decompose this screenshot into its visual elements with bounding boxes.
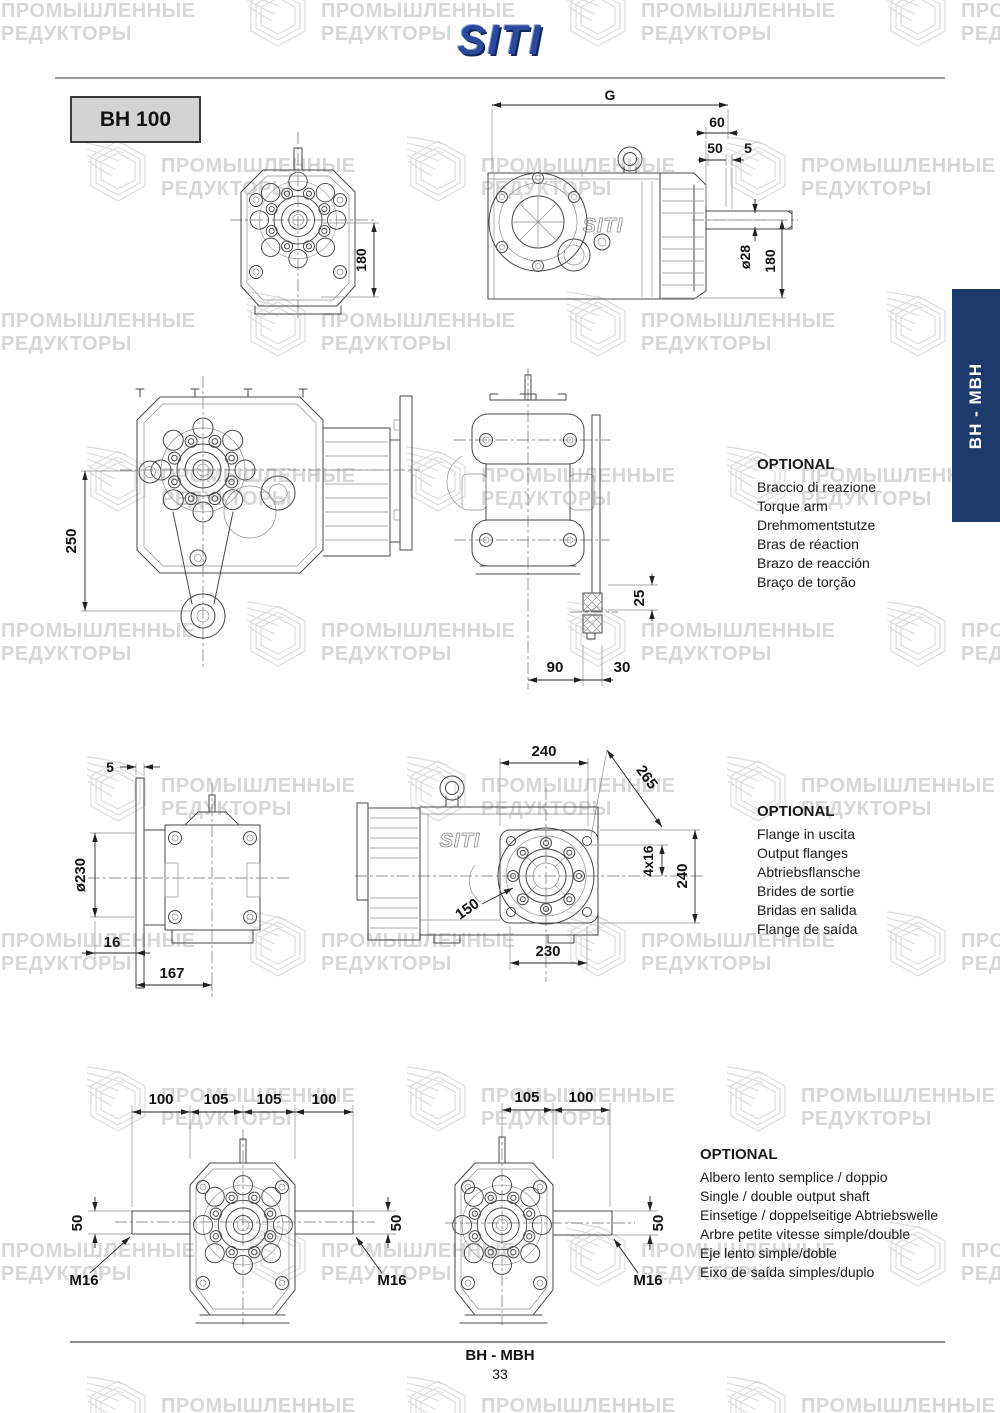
optional-title-2: OPTIONAL	[757, 803, 957, 820]
hexagon-watermark-icon	[565, 0, 631, 56]
drawing-torque-arm-side: 25 90 30	[450, 360, 730, 705]
optional-line: Brazo de reacción	[757, 554, 957, 573]
watermark-tile: ПРОМЫШЛЕННЫЕРЕДУКТОРЫ	[885, 0, 1000, 58]
dim-265: 265	[632, 762, 660, 792]
model-label-box: BH 100	[70, 96, 201, 143]
dim-105-c: 105	[514, 1089, 539, 1106]
hexagon-watermark-icon	[885, 600, 951, 676]
optional-line: Bridas en salida	[757, 901, 957, 920]
dim-105-a: 105	[203, 1091, 228, 1108]
dim-50-single: 50	[650, 1215, 667, 1232]
watermark-tile: ПРОМЫШЛЕННЫЕРЕДУКТОРЫ	[0, 0, 235, 58]
hexagon-watermark-icon	[885, 290, 951, 366]
dim-g: G	[605, 87, 616, 103]
dim-50-left: 50	[69, 1215, 86, 1232]
optional-block-output-flanges: OPTIONAL Flange in uscita Output flanges…	[757, 803, 957, 939]
optional-line: Eixo de saída simples/duplo	[700, 1263, 1000, 1282]
optional-line: Braço de torção	[757, 573, 957, 592]
optional-line: Eje lento simple/doble	[700, 1244, 1000, 1263]
dim-240-top: 240	[531, 743, 556, 760]
optional-line: Flange in uscita	[757, 825, 957, 844]
header-rule	[55, 77, 945, 79]
optional-line: Abtriebsflansche	[757, 863, 957, 882]
optional-line: Albero lento semplice / doppio	[700, 1168, 1000, 1187]
dim-25: 25	[631, 590, 648, 607]
optional-line: Flange de saída	[757, 920, 957, 939]
footer-series: BH - MBH	[0, 1347, 1000, 1364]
dim-16: 16	[104, 934, 121, 951]
watermark-tile: ПРОМЫШЛЕННЫЕРЕДУКТОРЫ	[565, 0, 875, 58]
dim-50: 50	[707, 140, 723, 156]
dim-60: 60	[709, 114, 725, 130]
dim-dia230: ø230	[72, 858, 89, 892]
optional-block-output-shaft: OPTIONAL Albero lento semplice / doppio …	[700, 1146, 1000, 1282]
dim-front-height: 180	[353, 248, 369, 272]
drawing-side-view: SITI G 60 50 5 ø28 180	[470, 85, 800, 320]
dim-100-c: 100	[568, 1089, 593, 1106]
side-tab-label: BH - MBH	[966, 362, 986, 448]
optional-block-torque-arm: OPTIONAL Braccio di reazione Torque arm …	[757, 456, 957, 592]
thread-m16-right: M16	[377, 1272, 406, 1289]
dim-5b: 5	[106, 759, 114, 775]
dim-30: 30	[614, 659, 631, 676]
dim-100-a: 100	[148, 1091, 173, 1108]
model-label: BH 100	[100, 108, 171, 132]
dim-100-b: 100	[311, 1091, 336, 1108]
footer-page-number: 33	[0, 1366, 1000, 1382]
side-tab: BH - MBH	[952, 289, 1000, 522]
dim-150: 150	[452, 895, 482, 923]
dim-167: 167	[159, 965, 184, 982]
dim-50-right: 50	[388, 1215, 405, 1232]
dim-side-height: 180	[762, 249, 778, 273]
dim-shaft-dia: ø28	[737, 245, 753, 269]
footer-rule	[70, 1341, 945, 1343]
drawing-flange-main: SITI 240 265 4x16 240 150	[350, 730, 710, 1020]
drawing-torque-arm-front: 250	[55, 360, 425, 705]
optional-line: Drehmomentstutze	[757, 516, 957, 535]
catalog-page: ПРОМЫШЛЕННЫЕРЕДУКТОРЫ ПРОМЫШЛЕННЫЕРЕДУКТ…	[0, 0, 1000, 1413]
optional-line: Brides de sortie	[757, 882, 957, 901]
dim-240-right: 240	[674, 863, 691, 888]
dim-250: 250	[63, 528, 80, 553]
watermark-tile: ПРОМЫШЛЕННЫЕРЕДУКТОРЫ	[885, 600, 1000, 678]
drawing-front-view: 180	[225, 110, 415, 325]
thread-m16-left: M16	[69, 1272, 98, 1289]
watermark-tile: ПРОМЫШЛЕННЫЕРЕДУКТОРЫ	[725, 1065, 1000, 1143]
siti-logo: SITI	[457, 16, 542, 64]
hexagon-watermark-icon	[245, 0, 311, 56]
optional-line: Output flanges	[757, 844, 957, 863]
drawing-single-shaft: 105 100 50 M16	[430, 1085, 730, 1330]
dim-4x16: 4x16	[640, 845, 656, 876]
watermark-tile: ПРОМЫШЛЕННЫЕРЕДУКТОРЫ	[0, 290, 235, 368]
thread-m16-single: M16	[633, 1272, 662, 1289]
optional-title-3: OPTIONAL	[700, 1146, 1000, 1163]
embossed-logo: SITI	[583, 215, 624, 237]
optional-line: Arbre petite vitesse simple/double	[700, 1225, 1000, 1244]
dim-5: 5	[744, 140, 752, 156]
optional-line: Einsetige / doppelseitige Abtriebswelle	[700, 1206, 1000, 1225]
dim-230: 230	[535, 943, 560, 960]
embossed-logo-2: SITI	[440, 830, 481, 852]
hexagon-watermark-icon	[885, 0, 951, 56]
optional-line: Single / double output shaft	[700, 1187, 1000, 1206]
dim-90: 90	[547, 659, 564, 676]
dim-105-b: 105	[256, 1091, 281, 1108]
optional-title-1: OPTIONAL	[757, 456, 957, 473]
optional-line: Torque arm	[757, 497, 957, 516]
optional-line: Bras de réaction	[757, 535, 957, 554]
optional-line: Braccio di reazione	[757, 478, 957, 497]
drawing-double-shaft: 100 105 105 100 50 50 M16 M16	[70, 1085, 440, 1330]
hexagon-watermark-icon	[85, 135, 151, 211]
drawing-flange-side: 5 ø230 16 167	[60, 745, 320, 1007]
hexagon-watermark-icon	[725, 1065, 791, 1141]
